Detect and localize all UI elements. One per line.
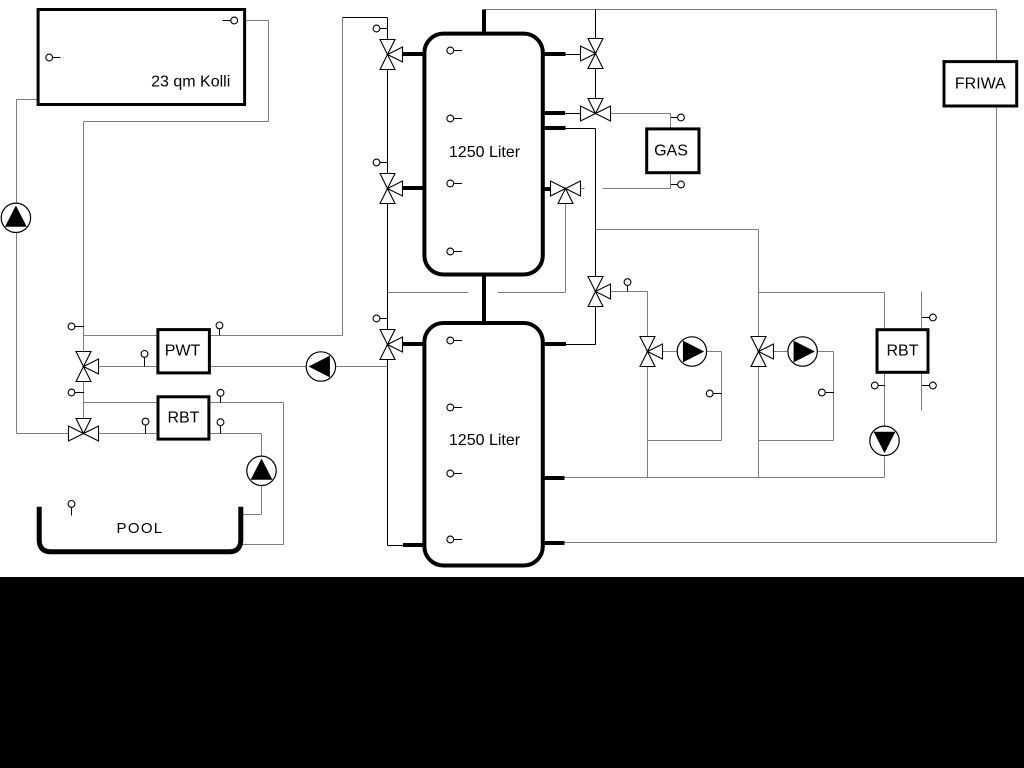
svg-text:GAS: GAS	[654, 142, 688, 159]
svg-text:23 qm Kolli: 23 qm Kolli	[151, 74, 230, 91]
svg-text:RBT: RBT	[167, 409, 199, 426]
svg-text:1250 Liter: 1250 Liter	[449, 144, 521, 161]
svg-text:PWT: PWT	[165, 343, 201, 360]
svg-text:RBT: RBT	[887, 343, 919, 360]
svg-text:1250 Liter: 1250 Liter	[449, 432, 521, 449]
svg-text:POOL: POOL	[117, 520, 164, 537]
svg-text:FRIWA: FRIWA	[955, 75, 1006, 92]
